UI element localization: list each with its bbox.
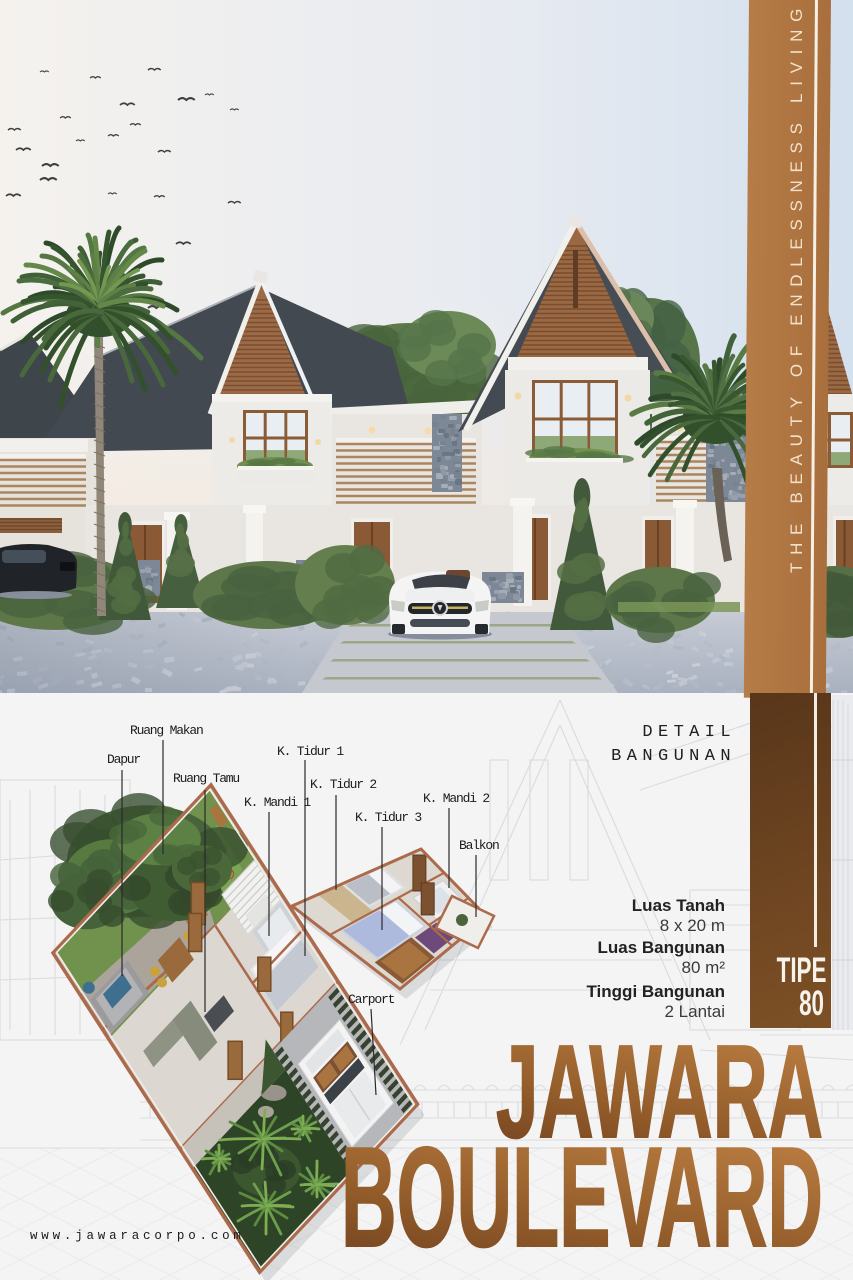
svg-text:BOULEVARD: BOULEVARD: [341, 1118, 823, 1277]
